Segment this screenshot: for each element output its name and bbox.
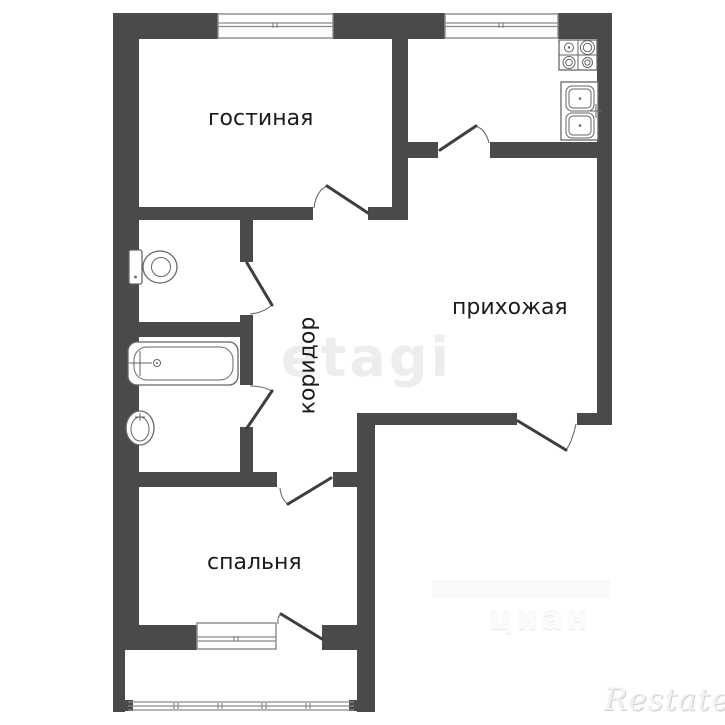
living-room-window bbox=[218, 14, 333, 38]
label-bedroom: спальня bbox=[207, 550, 302, 575]
bedroom-door bbox=[280, 478, 331, 504]
toilet bbox=[129, 250, 177, 284]
watermark-restate: Restate bbox=[604, 682, 725, 718]
label-living-room: гостиная bbox=[208, 106, 313, 131]
floor-plan: etagi циан Restate bbox=[0, 0, 725, 725]
label-hallway: прихожая bbox=[452, 295, 568, 320]
stove-icon bbox=[559, 40, 597, 70]
label-corridor: коридор bbox=[291, 315, 325, 415]
entrance-door bbox=[518, 421, 576, 450]
balcony-door bbox=[278, 614, 322, 639]
kitchen-door bbox=[440, 126, 489, 150]
label-corridor-text: коридор bbox=[296, 316, 321, 414]
living-room-door bbox=[314, 186, 368, 213]
wash-basin bbox=[126, 411, 154, 445]
kitchen-window bbox=[445, 14, 558, 38]
bathroom-door bbox=[247, 386, 272, 428]
plan-linework bbox=[0, 0, 725, 725]
wc-door bbox=[247, 263, 272, 314]
bathtub bbox=[128, 342, 238, 385]
balcony-glazing bbox=[125, 700, 357, 711]
bedroom-window bbox=[197, 623, 276, 649]
kitchen-sink bbox=[561, 82, 602, 140]
